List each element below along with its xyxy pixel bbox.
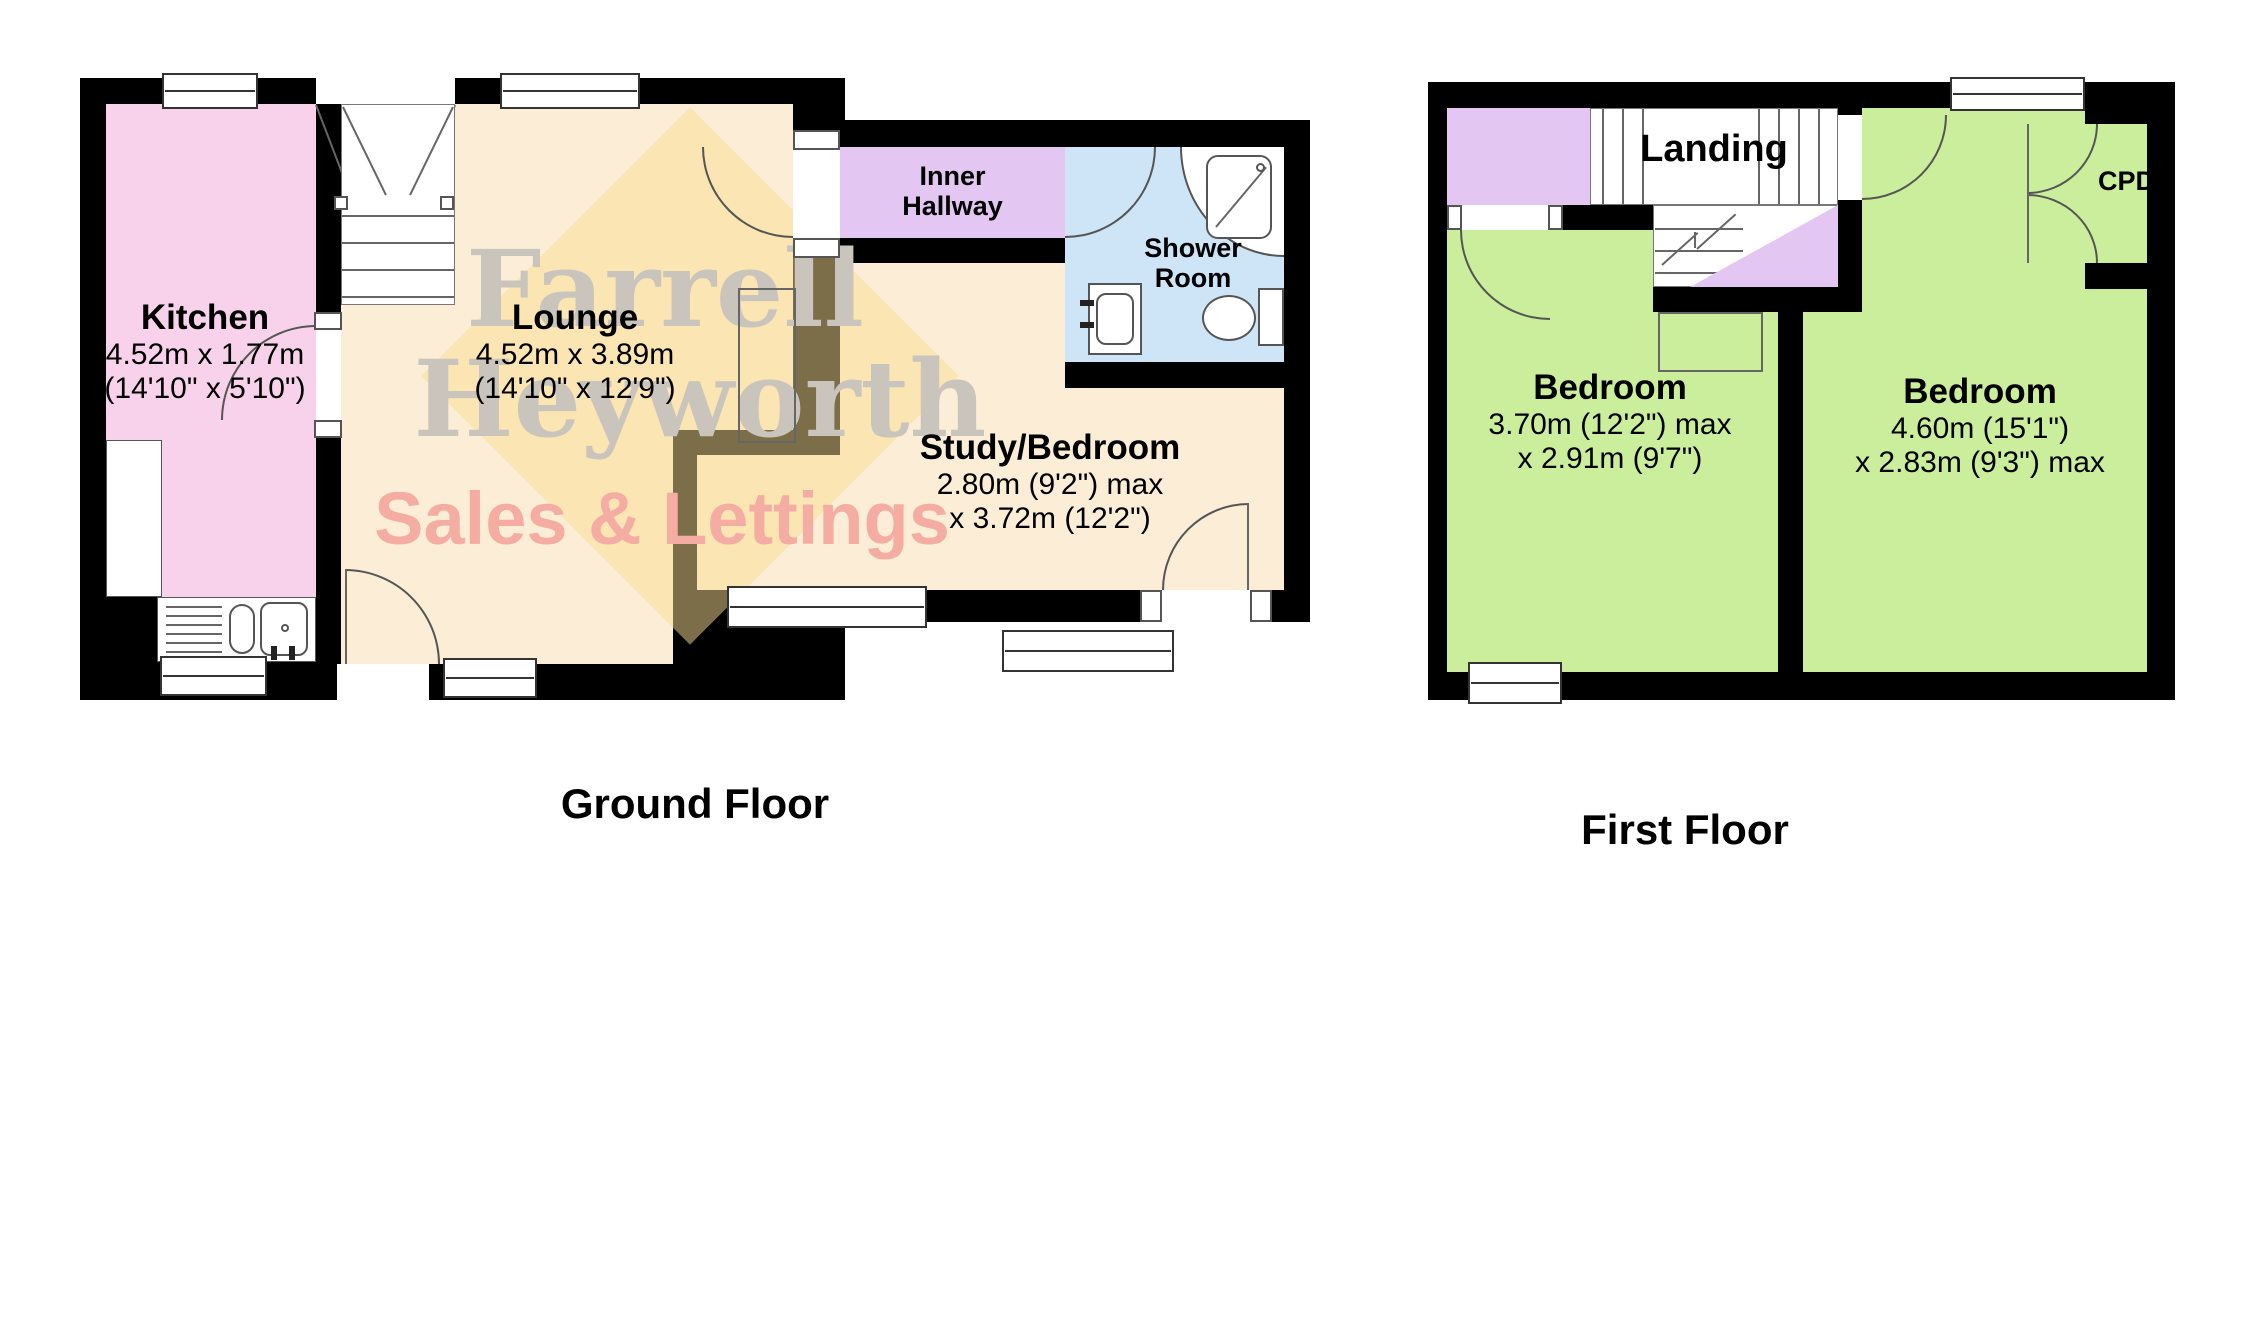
stair-tread bbox=[342, 242, 454, 244]
drainer-line bbox=[166, 606, 222, 608]
bedroom-left-dims1: 3.70m (12'2") max bbox=[1460, 408, 1760, 442]
window-first-bottom bbox=[1468, 662, 1562, 704]
label-bedroom-right: Bedroom 4.60m (15'1") x 2.83m (9'3") max bbox=[1820, 372, 2140, 480]
stair-bulkhead bbox=[1658, 312, 1763, 372]
kitchen-dims-imperial: (14'10" x 5'10") bbox=[100, 372, 310, 406]
bedroom-left-name: Bedroom bbox=[1460, 368, 1760, 408]
shower-head bbox=[1256, 163, 1265, 172]
stair-tread bbox=[342, 215, 454, 217]
label-lounge: Lounge 4.52m x 3.89m (14'10" x 12'9") bbox=[420, 298, 730, 406]
door-jamb bbox=[314, 312, 342, 330]
label-cupboard: CPD bbox=[2098, 166, 2150, 198]
drainer-line bbox=[166, 624, 222, 626]
bedroom-right-name: Bedroom bbox=[1820, 372, 2140, 412]
room-landing-left bbox=[1447, 108, 1590, 205]
window-kitchen-top bbox=[162, 73, 258, 109]
label-study-bedroom: Study/Bedroom 2.80m (9'2") max x 3.72m (… bbox=[880, 428, 1220, 536]
door-jamb bbox=[793, 238, 840, 258]
first-floor-title: First Floor bbox=[1485, 806, 1885, 854]
lounge-dims-metric: 4.52m x 3.89m bbox=[420, 338, 730, 372]
shower-room-line2: Room bbox=[1118, 264, 1268, 294]
study-bedroom-name: Study/Bedroom bbox=[880, 428, 1220, 468]
window-first-top bbox=[1950, 77, 2085, 111]
study-bedroom-dims2: x 3.72m (12'2") bbox=[880, 502, 1220, 536]
inner-hallway-line1: Inner bbox=[860, 162, 1045, 192]
shower-sink-basin bbox=[1096, 293, 1134, 345]
door-jamb bbox=[793, 130, 840, 150]
front-door-leaf bbox=[345, 569, 347, 664]
room-bedroom-right-ext bbox=[1803, 312, 1862, 672]
kitchen-tap bbox=[271, 646, 277, 660]
landing-name: Landing bbox=[1590, 128, 1838, 171]
sink-tap bbox=[1080, 322, 1094, 328]
drainer-line bbox=[166, 615, 222, 617]
lounge-name: Lounge bbox=[420, 298, 730, 338]
kitchen-name: Kitchen bbox=[100, 298, 310, 338]
lounge-alcove bbox=[738, 288, 796, 443]
door-jamb bbox=[1548, 205, 1563, 230]
window-lounge-top bbox=[500, 73, 640, 109]
stair-newel bbox=[334, 196, 348, 210]
kitchen-dims-metric: 4.52m x 1.77m bbox=[100, 338, 310, 372]
cupboard-wall-top bbox=[2085, 108, 2147, 124]
label-inner-hallway: Inner Hallway bbox=[860, 162, 1045, 221]
ground-floor-title: Ground Floor bbox=[495, 780, 895, 828]
kitchen-sink-basin-small bbox=[229, 604, 255, 654]
door-jamb bbox=[1250, 590, 1272, 622]
bedroom-left-door-opening bbox=[1460, 205, 1550, 230]
bedroom-right-dims2: x 2.83m (9'3") max bbox=[1820, 446, 2140, 480]
label-landing: Landing bbox=[1590, 128, 1838, 171]
bedroom-left-dims2: x 2.91m (9'7") bbox=[1460, 442, 1760, 476]
kitchen-tap bbox=[289, 646, 295, 660]
front-door-opening bbox=[337, 664, 429, 700]
window-study-bottom bbox=[727, 586, 927, 628]
kitchen-door-opening bbox=[316, 330, 341, 420]
stair-tread bbox=[1655, 250, 1743, 252]
kitchen-counter bbox=[106, 440, 162, 597]
window-lounge-bottom bbox=[443, 658, 537, 698]
lounge-dims-imperial: (14'10" x 12'9") bbox=[420, 372, 730, 406]
stair-newel bbox=[440, 196, 454, 210]
drainer-line bbox=[166, 642, 222, 644]
window-study-step bbox=[1002, 630, 1174, 672]
stair-return-wall bbox=[1653, 287, 1838, 312]
window-kitchen-bottom bbox=[160, 656, 267, 696]
stair-break-notch bbox=[1694, 232, 1696, 248]
door-jamb bbox=[1447, 205, 1462, 230]
label-shower-room: Shower Room bbox=[1118, 234, 1268, 293]
bedroom-right-dims1: 4.60m (15'1") bbox=[1820, 412, 2140, 446]
cupboard-wall-bottom bbox=[2085, 263, 2147, 289]
label-kitchen: Kitchen 4.52m x 1.77m (14'10" x 5'10") bbox=[100, 298, 310, 406]
hallway-door-opening bbox=[793, 150, 840, 238]
cupboard-door-leaf bbox=[2027, 124, 2029, 263]
toilet-bowl bbox=[1202, 295, 1256, 341]
kitchen-sink-drain bbox=[281, 624, 289, 632]
drainer-line bbox=[166, 633, 222, 635]
study-door-leaf bbox=[1247, 503, 1249, 590]
toilet-cistern bbox=[1258, 288, 1284, 346]
sink-tap bbox=[1080, 300, 1094, 306]
front-entry-opening bbox=[316, 78, 455, 104]
stair-tread bbox=[342, 269, 454, 271]
stair-tread bbox=[1655, 228, 1743, 230]
inner-hallway-line2: Hallway bbox=[860, 192, 1045, 222]
door-jamb bbox=[314, 420, 342, 438]
door-jamb bbox=[1140, 590, 1162, 622]
floorplan-canvas: Farrell Heyworth Sales & Lettings bbox=[0, 0, 2256, 1340]
label-bedroom-left: Bedroom 3.70m (12'2") max x 2.91m (9'7") bbox=[1460, 368, 1760, 476]
bedroom-right-door-opening bbox=[1838, 115, 1862, 200]
shower-room-line1: Shower bbox=[1118, 234, 1268, 264]
drainer-line bbox=[166, 651, 222, 653]
study-door-opening bbox=[1162, 590, 1250, 622]
study-bedroom-dims1: 2.80m (9'2") max bbox=[880, 468, 1220, 502]
